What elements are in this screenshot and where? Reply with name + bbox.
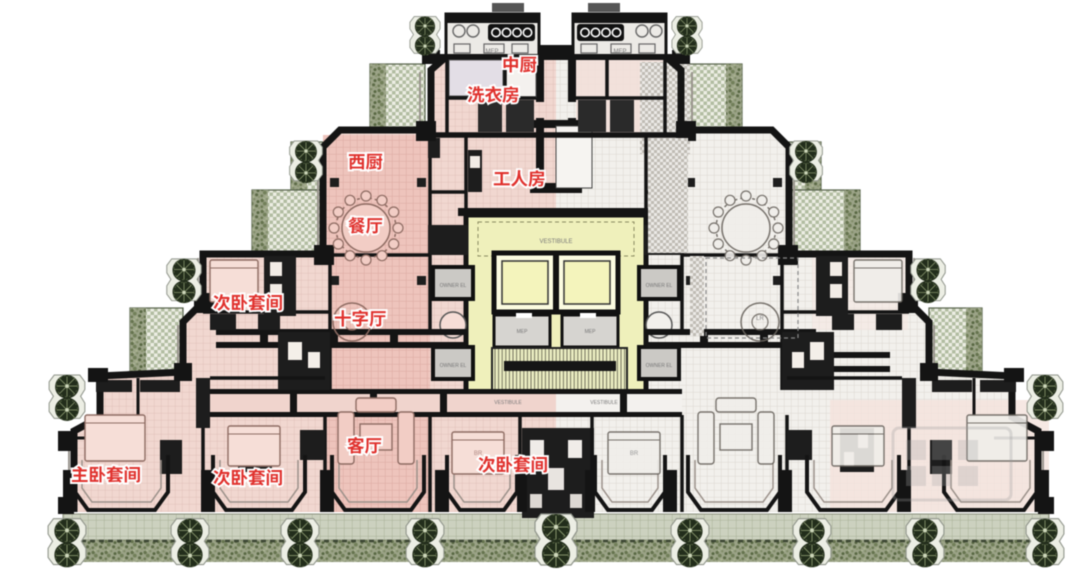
svg-text:BR: BR bbox=[474, 451, 483, 457]
svg-text:OWNER EL: OWNER EL bbox=[646, 363, 673, 369]
svg-text:MEP: MEP bbox=[517, 329, 529, 335]
svg-text:BR: BR bbox=[630, 451, 639, 457]
svg-text:OWNER EL: OWNER EL bbox=[440, 283, 467, 289]
svg-text:VESTIBULE: VESTIBULE bbox=[494, 400, 522, 406]
svg-text:OWNER EL: OWNER EL bbox=[646, 283, 673, 289]
svg-text:OWNER EL: OWNER EL bbox=[440, 363, 467, 369]
svg-text:MEP: MEP bbox=[485, 49, 498, 55]
svg-text:MEP: MEP bbox=[613, 49, 626, 55]
svg-text:LR: LR bbox=[756, 316, 764, 322]
svg-text:VESTIBULE: VESTIBULE bbox=[590, 400, 618, 406]
svg-text:VESTIBULE: VESTIBULE bbox=[539, 239, 572, 245]
svg-text:MEP: MEP bbox=[585, 329, 597, 335]
